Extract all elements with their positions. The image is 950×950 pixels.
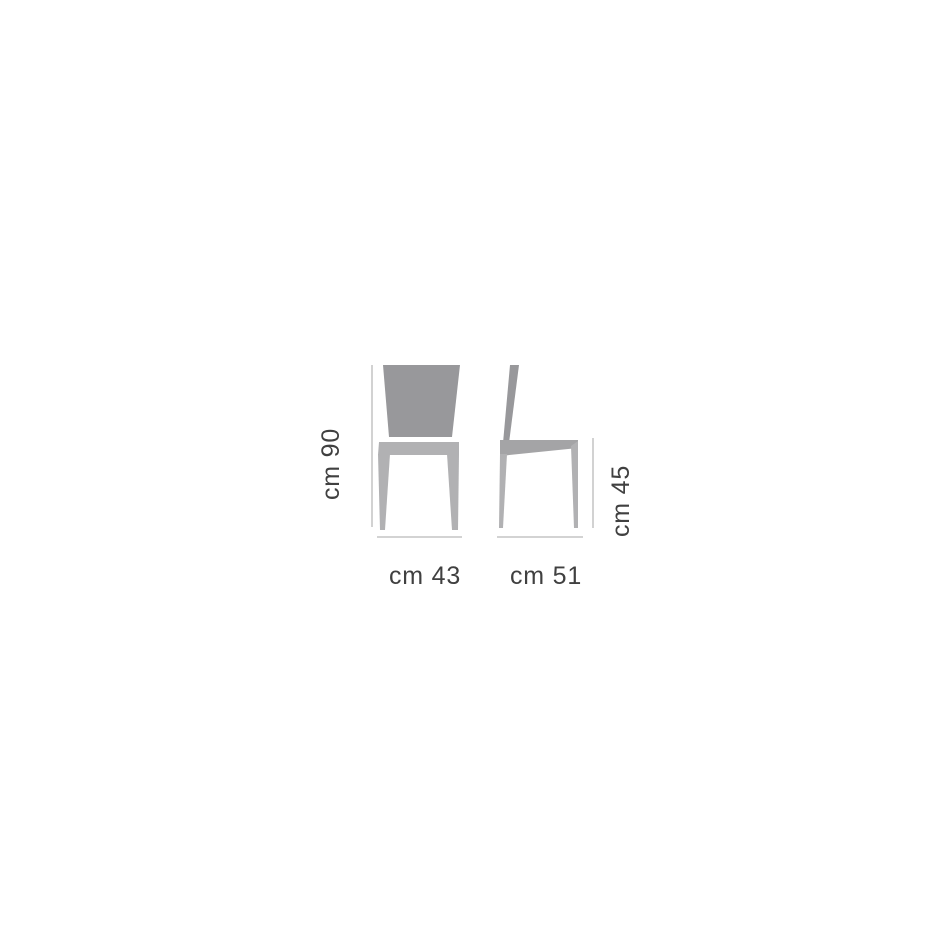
seat-height-dimension-label: cm 45 <box>607 465 635 537</box>
depth-dimension-label: cm 51 <box>510 562 582 590</box>
side-front-leg <box>571 441 578 528</box>
front-left-leg <box>378 454 390 530</box>
side-backrest <box>503 365 519 443</box>
front-seat <box>378 442 459 455</box>
front-view <box>378 365 460 530</box>
side-view <box>499 365 578 528</box>
chair-dimension-diagram: cm 90 cm 45 cm 43 cm 51 <box>0 0 950 950</box>
page-background: cm 90 cm 45 cm 43 cm 51 <box>0 0 950 950</box>
width-dimension-label: cm 43 <box>389 562 461 590</box>
front-right-leg <box>447 454 459 530</box>
side-seat <box>500 440 578 456</box>
side-back-leg <box>499 454 507 528</box>
dimension-labels: cm 90 cm 45 cm 43 cm 51 <box>317 428 635 590</box>
front-backrest <box>383 365 460 437</box>
height-dimension-label: cm 90 <box>317 428 345 500</box>
